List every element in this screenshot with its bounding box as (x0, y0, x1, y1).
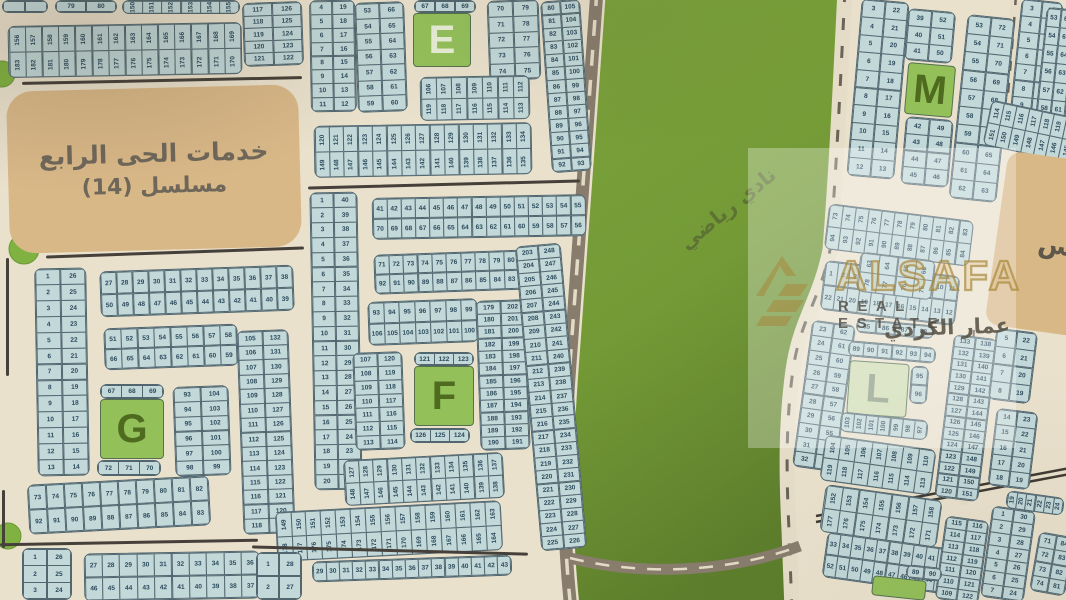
plot-cell: 16 (314, 415, 338, 431)
plot-cell: 113 (513, 97, 530, 119)
plot-cell: 95 (399, 301, 416, 323)
plot-cell: 32 (335, 311, 359, 327)
plot-cell: 124 (449, 429, 469, 443)
plot-cell: 163 (124, 24, 142, 50)
plot-cell: 168 (207, 23, 225, 49)
plot-cell: 1 (23, 549, 48, 566)
plot-cell: 59 (358, 95, 383, 112)
plot-cell: 25 (60, 284, 86, 301)
plot-cell: 5 (310, 14, 333, 29)
plot-cell: 69 (142, 385, 163, 399)
plot-cell: 48 (471, 196, 486, 217)
plot-cell: 60 (514, 216, 529, 237)
plot-cell: 137 (487, 148, 503, 174)
plot-cell: 113 (913, 470, 933, 495)
plot-cell: 62 (381, 63, 406, 80)
plot-cell: 33 (196, 268, 214, 291)
plot-cell: 177 (108, 50, 126, 76)
plot-cell: 164 (486, 525, 503, 551)
plot-cell: 87 (119, 504, 139, 530)
plot-cell: 52 (120, 328, 138, 349)
plot-cell: 59 (528, 215, 543, 236)
plots-block-120-149: 1201211221231241251261271281291301311321… (314, 122, 533, 178)
watermark-signature: عمار الكردي (850, 313, 1011, 343)
plot-cell: 44 (415, 197, 430, 218)
plot-cell: 6 (310, 28, 333, 43)
plots-block-105-132: 1051321061311071301081291091281101271111… (236, 329, 295, 535)
plot-cell: 69 (387, 218, 402, 239)
plot-cell: 19 (1008, 471, 1031, 489)
plot-cell: 142 (415, 149, 431, 175)
plot-cell: 81 (1047, 578, 1066, 596)
plot-cell: 9 (312, 311, 336, 327)
plot-cell: 158 (922, 499, 943, 525)
plot-cell: 89 (418, 272, 434, 292)
plots-block-51-66: 51525354555657586665646362616059 (103, 324, 238, 371)
plot-cell: 20 (61, 363, 87, 380)
plots-block-1-28-bottom: 128227 (256, 552, 302, 600)
plots-block-71-92: 7172737475767778798081929190898887868584… (373, 249, 534, 295)
plot-cell: 27 (279, 576, 302, 600)
plot-cell: 54 (355, 18, 380, 35)
plot-cell: 40 (261, 288, 279, 311)
plots-block-27-46-bottom: 2728293031323334353646454443424140393837 (84, 550, 261, 600)
plot-cell: 57 (556, 215, 571, 236)
plot-cell: 66 (379, 2, 404, 19)
plot-cell: 64 (457, 217, 472, 238)
plot-cell: 60 (204, 345, 222, 366)
plot-cell: 87 (446, 271, 462, 291)
plots-row-67-69-g: 676869 (100, 384, 164, 399)
plot-cell: 151 (142, 1, 162, 14)
plots-block-41-70: 4142434445464748495051525354557069686766… (372, 194, 587, 240)
plot-cell: 58 (357, 80, 382, 97)
plot-cell: 12 (333, 96, 356, 111)
plot-cell: 164 (141, 24, 159, 50)
plot-cell: 226 (563, 533, 587, 549)
plot-cell: 76 (514, 47, 540, 64)
plot-cell: 75 (63, 483, 83, 509)
plot-cell: 70 (139, 461, 160, 476)
plot-cell: 12 (313, 355, 337, 371)
plot-cell: 32 (171, 552, 190, 576)
plots-row-70-72: 727170 (97, 460, 161, 476)
plot-cell: 48 (133, 292, 151, 315)
plot-cell: 54 (153, 327, 171, 348)
plot-cell: 171 (208, 48, 226, 74)
plot-cell: 96 (414, 300, 431, 322)
plot-cell: 93 (571, 156, 592, 171)
plot-cell: 33 (335, 296, 359, 312)
plot-cell: 8 (312, 296, 336, 312)
plot-cell: 97 (430, 300, 447, 322)
plot-cell: 57 (203, 325, 221, 346)
plot-cell: 26 (47, 549, 72, 566)
plot-cell: 77 (99, 481, 119, 507)
plot-cell: 72 (488, 32, 514, 49)
plot-cell: 147 (343, 151, 359, 177)
plot-cell: 24 (1001, 585, 1024, 600)
plot-cell: 17 (62, 411, 88, 428)
edge-mark-2 (2, 490, 5, 548)
plot-cell: 156 (8, 26, 26, 52)
plots-block-27-50: 2728293031323334353637385049484746454443… (99, 265, 294, 318)
plot-cell: 99 (203, 459, 231, 475)
plots-block-topcut (2, 0, 48, 13)
plot-cell: 10 (311, 83, 334, 98)
plot-cell: 78 (513, 15, 539, 32)
plot-cell: 183 (9, 51, 27, 77)
plot-cell: 10 (312, 326, 336, 342)
block-letter-G: G (100, 399, 164, 459)
plot-cell: 15 (314, 400, 338, 416)
plot-cell: 53 (542, 195, 557, 216)
plot-cell: 43 (137, 576, 156, 600)
plot-cell: 84 (489, 270, 505, 290)
plot-cell: 42 (386, 198, 401, 219)
plots-block-93-104: 93104941039510296101971009899 (172, 385, 231, 477)
plot-cell: 35 (228, 267, 246, 290)
plot-cell: 122 (956, 589, 979, 600)
plot-cell: 37 (260, 266, 278, 289)
plot-cell: 174 (158, 49, 176, 75)
plot-cell: 153 (181, 1, 201, 14)
plot-cell: 1 (257, 553, 280, 577)
plot-cell: 109 (935, 586, 958, 600)
plot-cell: 31 (154, 553, 173, 577)
plot-cell: 10 (37, 411, 63, 428)
plot-cell: 61 (500, 216, 515, 237)
plot-cell: 170 (224, 48, 242, 74)
plot-cell: 144 (387, 150, 403, 176)
plot-cell: 129 (444, 124, 460, 150)
plot-cell: 110 (482, 76, 499, 98)
plot-cell: 13 (38, 459, 64, 476)
services-label-line2: مسلسل (14) (81, 172, 227, 201)
plot-cell: 44 (119, 576, 138, 600)
plot-cell: 92 (552, 157, 573, 172)
plots-row-67-69-e: 676869 (414, 0, 476, 13)
plot-cell: 122 (434, 353, 454, 366)
plot-cell: 34 (335, 281, 359, 297)
plot-cell: 109 (467, 76, 484, 98)
plot-cell: 46 (85, 577, 104, 600)
plot-cell: 39 (333, 207, 357, 223)
plots-block-106-119: 1061071081091101111121191181171161151141… (420, 75, 531, 121)
plot-cell: 27 (100, 271, 118, 294)
plot-cell: 122 (343, 126, 359, 152)
plot-cell: 138 (488, 474, 504, 498)
plots-block-93-106: 93949596979899106105104103102101100 (367, 298, 478, 346)
plot-cell: 51 (514, 196, 529, 217)
plot-cell: 113 (356, 435, 381, 450)
watermark-overlay: ALSAFA REAL ESTATE عمار الكردي (748, 148, 1016, 448)
plot-cell: 56 (571, 215, 586, 236)
plot-cell: 54 (556, 195, 571, 216)
plot-map-photo: نادي رياضي 7980 150151152153154155 11712… (0, 0, 1066, 600)
plot-cell: 17 (332, 28, 355, 43)
plot-cell: 53 (355, 3, 380, 20)
plot-cell: 14 (333, 69, 356, 84)
plot-cell: 179 (75, 50, 93, 76)
plot-cell: 40 (189, 575, 208, 599)
plot-cell: 182 (25, 51, 43, 77)
plot-cell: 106 (420, 77, 437, 99)
plot-cell: 62 (171, 346, 189, 367)
plot-cell: 77 (513, 31, 539, 48)
plot-cell: 41 (245, 288, 263, 311)
plot-cell: 71 (488, 16, 514, 33)
plot-cell (3, 1, 26, 13)
plot-cell: 191 (505, 435, 530, 449)
plots-block-127-148: 1271281291301311321331341351361371481471… (343, 452, 505, 506)
plot-cell: 15 (333, 55, 356, 70)
plot-cell: 110 (916, 448, 936, 473)
plot-cell: 52 (528, 195, 543, 216)
plot-cell: 39 (277, 287, 295, 310)
plot-cell: 4 (311, 237, 335, 253)
plot-cell: 120 (935, 484, 958, 499)
plot-cell: 55 (170, 326, 188, 347)
plot-cell: 67 (415, 1, 436, 13)
plot-cell: 73 (403, 254, 419, 274)
plot-cell: 166 (174, 23, 192, 49)
plot-cell: 58 (219, 324, 237, 345)
plot-cell: 18 (332, 14, 355, 29)
plot-cell: 88 (432, 272, 448, 292)
plot-cell: 81 (171, 477, 191, 503)
plot-cell: 60 (382, 94, 407, 111)
block-letter-F: F (414, 366, 474, 426)
plot-cell: 98 (445, 299, 462, 321)
plot-cell: 102 (430, 321, 447, 343)
plot-cell: 9 (37, 395, 63, 412)
plot-cell: 31 (164, 269, 182, 292)
plot-cell: 85 (155, 502, 175, 528)
plot-cell: 112 (513, 76, 530, 98)
plot-cell: 50 (500, 196, 515, 217)
plot-cell: 2 (35, 284, 61, 301)
plot-cell: 46 (165, 291, 183, 314)
plot-cell: 84 (173, 501, 193, 527)
plot-cell: 13 (333, 83, 356, 98)
plot-cell: 36 (244, 266, 262, 289)
plot-cell: 123 (453, 353, 473, 366)
plot-cell: 64 (138, 347, 156, 368)
plot-cell: 78 (474, 251, 490, 271)
plots-block-117-126: 117126118125119124120123121122 (242, 1, 304, 67)
plot-cell: 4 (36, 316, 62, 333)
plot-cell: 19 (315, 459, 339, 475)
plot-cell: 190 (481, 436, 506, 450)
plots-row-124-126: 126125124 (410, 428, 470, 443)
plot-cell: 162 (108, 25, 126, 51)
plot-cell: 75 (431, 253, 447, 273)
plots-block-79-80: 7980 (55, 0, 117, 13)
plot-cell: 90 (403, 273, 419, 293)
plot-cell: 225 (541, 535, 565, 551)
plot-cell: 43 (497, 555, 512, 575)
plot-cell: 121 (415, 353, 435, 366)
plot-cell: 8 (37, 380, 63, 397)
plot-cell: 169 (224, 23, 242, 49)
plot-cell: 108 (451, 77, 468, 99)
plot-cell: 21 (61, 347, 87, 364)
plot-cell: 154 (200, 1, 220, 14)
plot-cell: 111 (497, 76, 514, 98)
plot-cell: 28 (116, 271, 134, 294)
plot-cell: 58 (542, 215, 557, 236)
plot-cell: 12 (38, 443, 64, 460)
plot-cell: 13 (313, 370, 337, 386)
plot-cell: 44 (197, 290, 215, 313)
plot-cell: 40 (333, 192, 357, 208)
plot-cell: 76 (81, 482, 101, 508)
plot-cell: 55 (356, 33, 381, 50)
plot-cell: 134 (516, 123, 532, 149)
alsafa-logo (750, 250, 834, 334)
plot-cell: 172 (191, 48, 209, 74)
block-letter-E: E (413, 13, 471, 67)
plots-block-topstrip: 150151152153154155 (122, 0, 240, 14)
plot-cell: 171 (918, 521, 939, 547)
plot-cell: 163 (484, 501, 501, 527)
plot-cell: 27 (84, 554, 103, 578)
plot-cell: 65 (379, 17, 404, 34)
plot-cell: 4 (310, 1, 333, 16)
plot-cell: 18 (62, 395, 88, 412)
plot-cell: 22 (61, 332, 87, 349)
plot-cell: 137 (487, 452, 503, 476)
plot-cell: 79 (489, 251, 505, 271)
plot-cell: 127 (415, 124, 431, 150)
plot-cell: 3 (35, 300, 61, 317)
plot-cell: 45 (181, 291, 199, 314)
plot-cell: 46 (443, 197, 458, 218)
plot-cell: 66 (429, 217, 444, 238)
plot-cell: 50 (927, 44, 952, 63)
plot-cell: 116 (467, 97, 484, 119)
services-fragment-label: س (1036, 228, 1066, 263)
plot-cell: 56 (356, 49, 381, 66)
plot-cell: 64 (380, 33, 405, 50)
plots-block-r-39-52: 395240514150 (904, 8, 956, 64)
plot-cell: 31 (335, 325, 359, 341)
plot-cell: 62 (486, 216, 501, 237)
plot-cell: 7 (980, 582, 1003, 599)
plot-cell: 35 (334, 266, 358, 282)
plot-cell: 125 (430, 429, 450, 443)
plot-cell: 114 (498, 97, 515, 119)
plot-cell: 47 (149, 292, 167, 315)
plot-cell: 92 (375, 274, 391, 294)
plots-block-107-120: 1071201081191091181101171111161121151131… (352, 351, 405, 451)
plot-cell: 67 (101, 385, 122, 399)
block-letter-M: M (904, 62, 956, 118)
plot-cell: 51 (104, 328, 122, 349)
plot-cell: 61 (381, 79, 406, 96)
plots-block-156-183: 1561571581591601611621631641651661671681… (8, 22, 243, 78)
plots-block-70-79: 70797178727773767475 (487, 0, 542, 81)
plot-cell: 63 (380, 48, 405, 65)
plot-cell: 77 (460, 252, 476, 272)
plot-cell: 149 (275, 512, 292, 538)
plot-cell: 3 (23, 582, 48, 599)
plots-block-1-40: 1402393384375366357348339321031113012291… (309, 192, 362, 491)
plot-cell: 35 (223, 551, 242, 575)
plot-cell: 80 (86, 1, 117, 13)
plot-cell: 43 (213, 289, 231, 312)
plot-cell: 70 (373, 218, 388, 239)
plot-cell: 135 (516, 148, 532, 174)
plot-cell: 69 (455, 1, 476, 13)
plot-cell: 68 (401, 218, 416, 239)
plot-cell: 42 (154, 576, 173, 600)
plots-block-1-26-bottom: 126225324 (22, 548, 72, 600)
plot-cell: 149 (315, 151, 331, 177)
plot-cell: 71 (374, 255, 390, 275)
plot-cell: 6 (36, 348, 62, 365)
plot-cell: 38 (224, 574, 243, 598)
plot-cell: 72 (98, 461, 119, 476)
plot-cell: 65 (121, 348, 139, 369)
plot-cell: 41 (172, 575, 191, 599)
plot-cell: 89 (83, 506, 103, 532)
plot-cell: 139 (459, 149, 475, 175)
plot-cell: 86 (137, 503, 157, 529)
plot-cell: 78 (117, 480, 137, 506)
plot-cell: 83 (190, 500, 210, 526)
plot-cell: 105 (384, 322, 401, 344)
plot-cell: 5 (36, 332, 62, 349)
plot-cell: 140 (444, 149, 460, 175)
plot-cell: 63 (154, 347, 172, 368)
plot-cell: 82 (189, 476, 209, 502)
plot-cell: 175 (141, 49, 159, 75)
plot-cell: 181 (42, 51, 60, 77)
plot-cell: 42 (229, 289, 247, 312)
plot-cell: 86 (461, 271, 477, 291)
plot-cell: 74 (45, 483, 65, 509)
plots-block-4-19: 41951861771681591410131112 (309, 0, 357, 112)
plot-cell: 71 (118, 461, 139, 476)
plot-cell: 157 (25, 26, 43, 52)
plot-cell: 152 (161, 1, 181, 14)
plot-cell: 167 (191, 23, 209, 49)
plot-cell: 117 (451, 98, 468, 120)
plot-cell: 59 (220, 344, 238, 365)
plot-cell: 155 (219, 1, 239, 14)
plot-cell: 159 (58, 25, 76, 51)
plot-cell: 20 (315, 474, 339, 490)
plot-cell: 23 (61, 316, 87, 333)
plot-cell: 29 (132, 270, 150, 293)
plot-cell: 19 (62, 379, 88, 396)
plot-cell: 9 (311, 69, 334, 84)
plot-cell: 145 (372, 150, 388, 176)
plot-cell: 18 (314, 444, 338, 460)
plot-cell: 161 (91, 25, 109, 51)
plot-cell: 160 (74, 25, 92, 51)
plot-cell: 2 (310, 207, 334, 223)
plot-cell: 39 (206, 575, 225, 599)
plot-cell: 15 (63, 442, 89, 459)
plot-cell: 158 (41, 26, 59, 52)
plot-cell: 74 (417, 253, 433, 273)
plot-cell: 119 (421, 98, 438, 120)
plot-cell: 11 (311, 97, 334, 112)
plot-cell: 38 (276, 265, 294, 288)
